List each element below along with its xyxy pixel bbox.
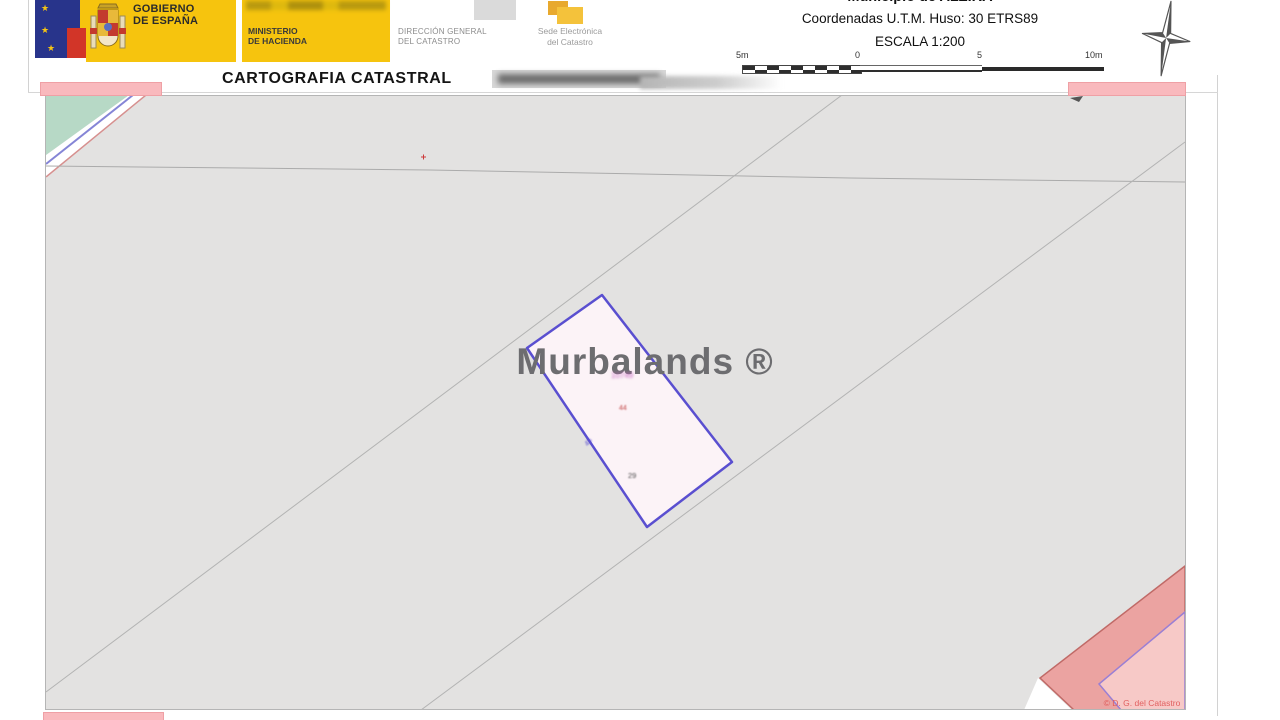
direccion-general-label: DIRECCIÓN GENERAL DEL CATASTRO (398, 27, 487, 47)
scalebar-tick-10m: 10m (1085, 50, 1103, 60)
scalebar-solid-segment (982, 67, 1104, 72)
scalebar-tick-0: 0 (855, 50, 860, 60)
scalebar-checkered-segment (742, 65, 862, 74)
header-divider (28, 92, 1218, 93)
cadastral-map-canvas: © D. G. del Catastro (45, 95, 1186, 710)
compass-rose-icon (1134, 0, 1198, 81)
municipio-label-clipped: Municipio de ALZIRA (780, 0, 1060, 8)
redacted-gray-box (474, 0, 516, 20)
star-icon: ★ (47, 44, 55, 53)
parcel-red-label: 44 (619, 405, 627, 412)
ministerio-label: MINISTERIO DE HACIENDA (248, 26, 307, 46)
page-border-right (1217, 75, 1218, 716)
star-icon: ★ (41, 26, 49, 35)
sede-electronica-label: Sede Electrónica del Catastro (526, 26, 614, 48)
scale-label: ESCALA 1:200 (780, 34, 1060, 49)
redacted-pink-box-bottom-left (43, 712, 164, 720)
scalebar-tick-5: 5 (977, 50, 982, 60)
utm-coordinates-label: Coordenadas U.T.M. Huso: 30 ETRS89 (780, 11, 1060, 26)
catastro-copyright: © D. G. del Catastro (1104, 698, 1181, 708)
parcel-dark-label: 29 (628, 471, 636, 480)
scalebar-tick-5m: 5m (736, 50, 749, 60)
folder-icon (557, 7, 583, 24)
scalebar-open-segment (860, 65, 982, 72)
redacted-ministry-line (246, 1, 386, 10)
watermark: Murbalands ® (495, 341, 795, 383)
spain-coat-of-arms-icon (88, 2, 128, 60)
parcel-number-label: 10749 (611, 371, 633, 380)
scalebar (742, 65, 1104, 73)
star-icon: ★ (41, 4, 49, 13)
redacted-pink-box-top-left (40, 82, 162, 96)
page-title: CARTOGRAFIA CATASTRAL (222, 70, 452, 88)
redacted-pink-box-top-right (1068, 82, 1186, 96)
redacted-smudge (640, 76, 782, 89)
page-border-left (28, 0, 29, 93)
spain-flag-red (67, 28, 86, 58)
gobierno-label: GOBIERNO DE ESPAÑA (133, 3, 198, 27)
